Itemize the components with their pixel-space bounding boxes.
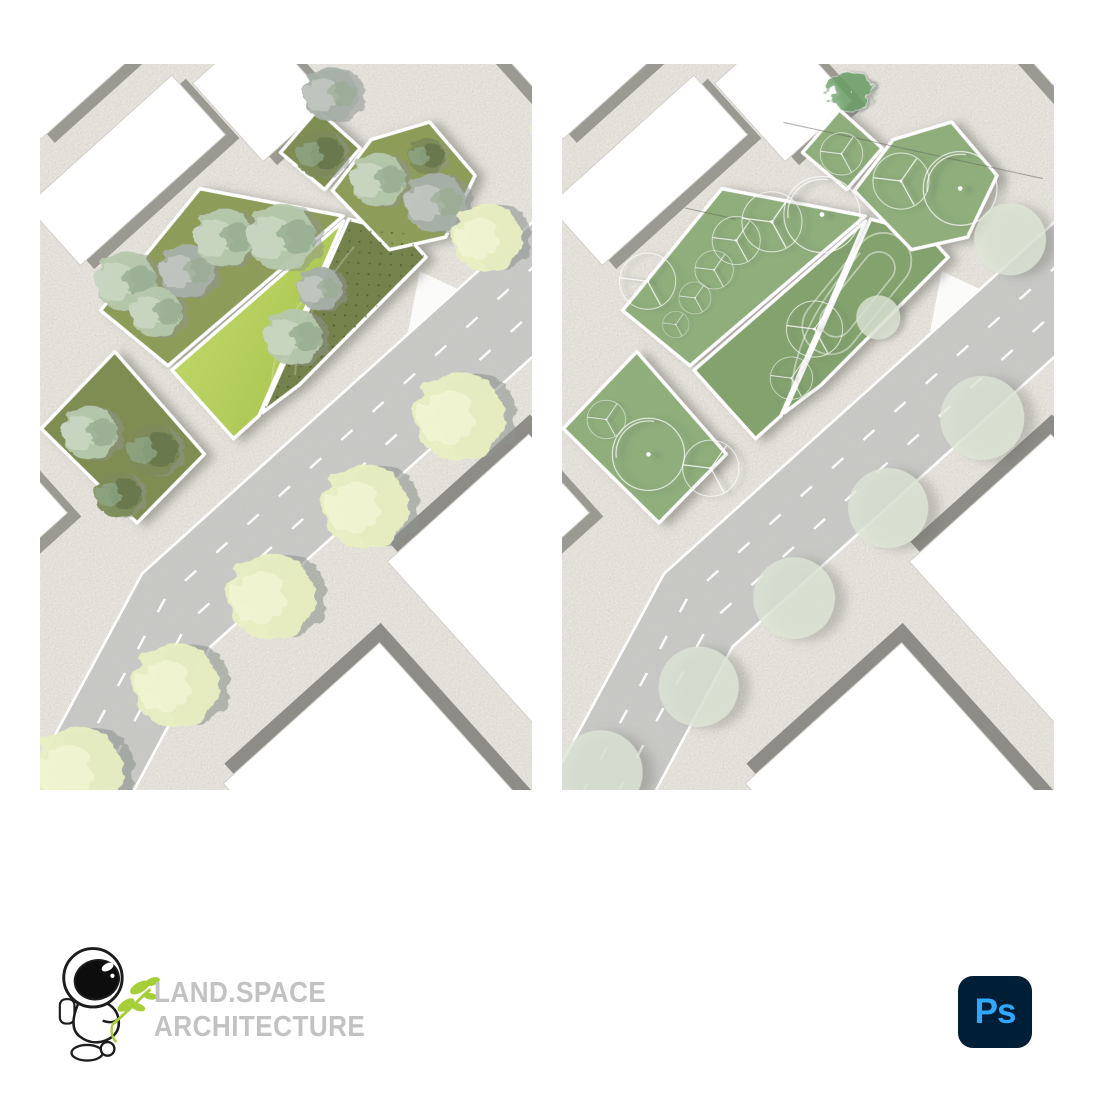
watercolor-plan	[40, 64, 532, 790]
vector-plan	[562, 64, 1054, 790]
studio-logo: LAND.SPACE ARCHITECTURE	[54, 942, 389, 1070]
poster-canvas: LAND.SPACE ARCHITECTURE Ps	[0, 0, 1100, 1100]
studio-name-line2: ARCHITECTURE	[154, 1010, 365, 1044]
studio-name: LAND.SPACE ARCHITECTURE	[154, 976, 365, 1044]
photoshop-icon: Ps	[958, 976, 1032, 1048]
plan-panel-vector	[562, 64, 1054, 790]
plan-panel-watercolor	[40, 64, 532, 790]
studio-name-line1: LAND.SPACE	[154, 976, 365, 1010]
astronaut-icon	[54, 942, 166, 1070]
